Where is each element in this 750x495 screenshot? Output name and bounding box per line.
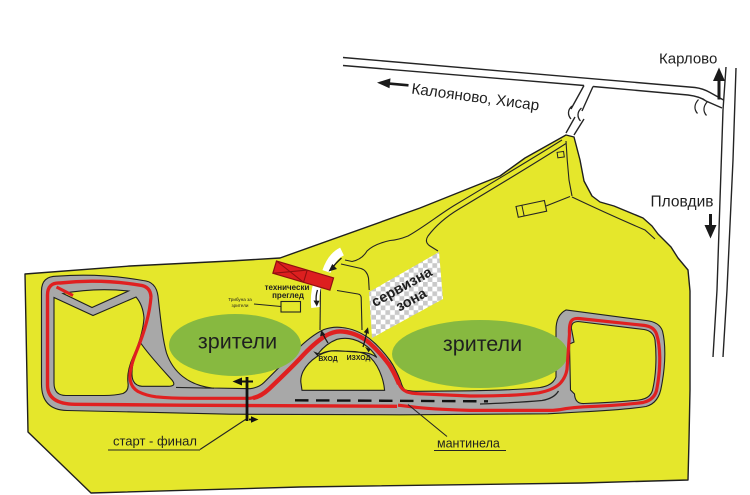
svg-text:зрители: зрители	[443, 332, 522, 356]
svg-text:Трибуна за: Трибуна за	[228, 297, 252, 302]
svg-text:ИЗХОД: ИЗХОД	[347, 355, 371, 362]
svg-text:мантинела: мантинела	[437, 437, 500, 451]
svg-text:ВХОД: ВХОД	[318, 356, 337, 363]
svg-text:старт - финал: старт - финал	[113, 434, 197, 449]
svg-text:Карлово: Карлово	[659, 51, 717, 68]
svg-text:преглед: преглед	[272, 291, 304, 300]
svg-text:Пловдив: Пловдив	[651, 194, 714, 211]
svg-text:зрители: зрители	[198, 330, 277, 354]
svg-text:зрители: зрители	[232, 303, 249, 308]
